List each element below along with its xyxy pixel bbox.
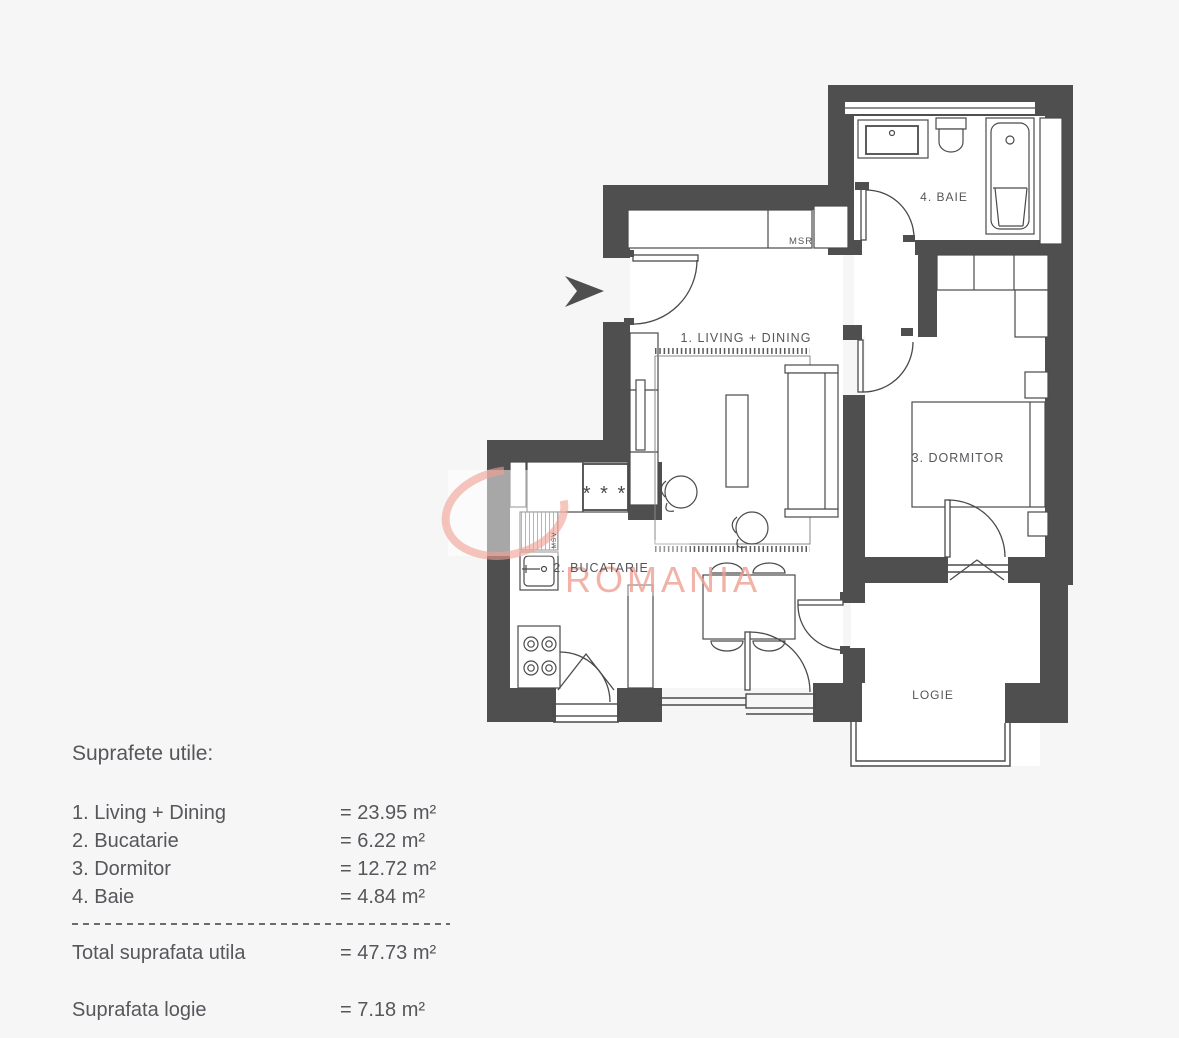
room-label-bucatarie: 2. BUCATARIE: [553, 561, 649, 575]
legend-row-logie: Suprafata logie = 7.18 m²: [72, 996, 472, 1024]
washing-machine: [814, 206, 848, 248]
legend-value: = 7.18 m²: [340, 996, 472, 1024]
legend-title: Suprafete utile:: [72, 742, 472, 766]
bath-sink: [858, 120, 928, 158]
legend-row-total: Total suprafata utila = 47.73 m²: [72, 939, 472, 967]
logie-floor: [851, 583, 1040, 766]
bath-shaft: [1040, 118, 1062, 244]
nightstand-2: [1028, 512, 1048, 536]
toilet: [936, 118, 966, 152]
legend-row-baie: 4. Baie = 4.84 m²: [72, 883, 472, 911]
floor-plan-page: ROMANIA 1. LIVING + DINING 2. BUCATARIE …: [0, 0, 1179, 1038]
stove: [518, 626, 560, 688]
bath-door-opening: [862, 240, 915, 255]
legend-value: = 47.73 m²: [340, 939, 472, 967]
legend-value: = 6.22 m²: [340, 827, 472, 855]
legend-label: 2. Bucatarie: [72, 827, 340, 855]
room-label-baie: 4. BAIE: [920, 190, 968, 204]
tv-cabinet: [630, 333, 658, 505]
legend-value: = 12.72 m²: [340, 855, 472, 883]
vestibule-floor: [854, 255, 918, 337]
legend-label: Suprafata logie: [72, 996, 340, 1024]
room-label-dormitor: 3. DORMITOR: [912, 451, 1005, 465]
kitchen-window-opening: [556, 688, 617, 722]
room-label-logie: LOGIE: [912, 688, 954, 702]
legend-row-dormitor: 3. Dormitor = 12.72 m²: [72, 855, 472, 883]
legend-value: = 4.84 m²: [340, 883, 472, 911]
sofa: [785, 365, 838, 517]
coffee-table: [726, 395, 748, 487]
label-msr: MSR: [789, 236, 813, 247]
kitchen-partition: [628, 585, 653, 688]
area-legend: Suprafete utile: 1. Living + Dining = 23…: [72, 742, 472, 1024]
legend-label: 4. Baie: [72, 883, 340, 911]
legend-row-bucatarie: 2. Bucatarie = 6.22 m²: [72, 827, 472, 855]
label-msv: MSV: [551, 531, 558, 548]
entrance-arrow-icon: [565, 276, 604, 307]
legend-label: Total suprafata utila: [72, 939, 340, 967]
bathtub: [986, 118, 1034, 234]
hall-closet: [628, 210, 812, 248]
freezer-stars: * * *: [583, 483, 627, 505]
nightstand-1: [1025, 372, 1048, 398]
legend-value: = 23.95 m²: [340, 799, 472, 827]
room-label-living: 1. LIVING + DINING: [681, 331, 812, 345]
legend-label: 1. Living + Dining: [72, 799, 340, 827]
legend-divider: [72, 923, 450, 925]
legend-row-living: 1. Living + Dining = 23.95 m²: [72, 799, 472, 827]
legend-label: 3. Dormitor: [72, 855, 340, 883]
door-threshold: [746, 694, 815, 708]
